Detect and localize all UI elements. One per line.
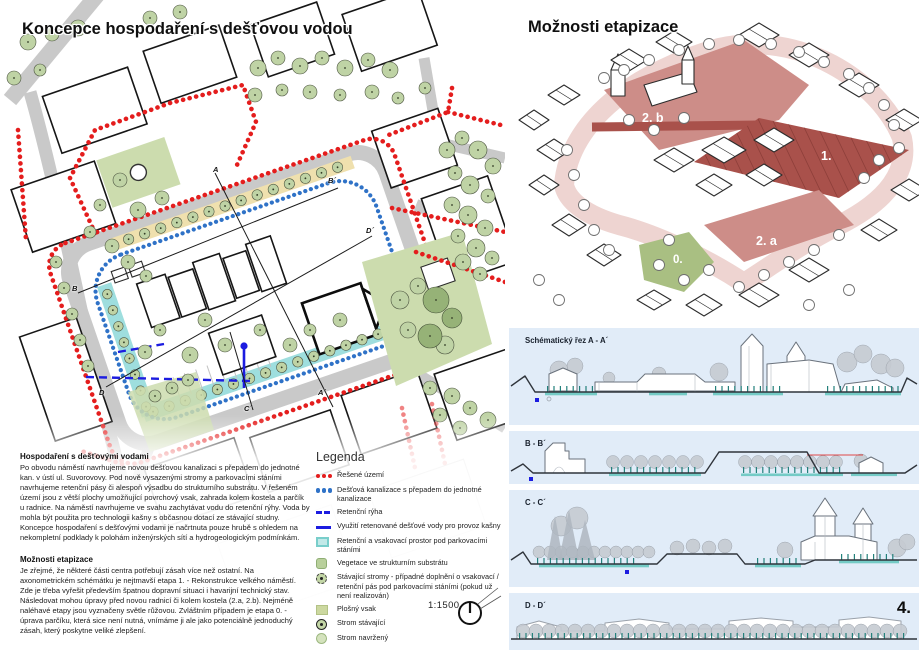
text-block-rainwater: Hospodaření s dešťovými vodami Po obvodu… (20, 452, 310, 543)
legend: Legenda Řešené území Dešťová kanalizace … (316, 450, 502, 648)
axonometric-view: Možnosti etapizace 2. b 1. 2. a 0. (509, 0, 919, 328)
legend-item: Využití retenované dešťové vody pro prov… (316, 521, 502, 533)
section-label-a: Schématický řez A - A´ (525, 336, 608, 345)
legend-item: Retenční rýha (316, 507, 502, 519)
stage-label-2b: 2. b (642, 111, 664, 125)
legend-marker-blue-dots-icon (316, 485, 333, 496)
legend-item: Retenční a vsakovací prostor pod parkova… (316, 536, 502, 555)
text-block-phasing-heading: Možnosti etapizace (20, 555, 310, 564)
text-block-rainwater-body: Po obvodu náměstí navrhujeme novou dešťo… (20, 463, 310, 543)
section-marker-d: D (99, 388, 104, 397)
legend-marker-tree-proposed-icon (316, 633, 333, 644)
legend-marker-blue-line-icon (316, 522, 333, 533)
legend-item: Plošný vsak (316, 604, 502, 616)
stage-label-2a: 2. a (756, 234, 777, 248)
legend-marker-tree-existing-icon (316, 619, 333, 630)
section-label-c: C - C´ (525, 498, 546, 507)
section-c-drawing (509, 490, 919, 587)
section-marker-c2: C´ (244, 404, 252, 413)
legend-item: Strom stávající (316, 618, 502, 630)
section-d-drawing (509, 593, 919, 650)
axonometric-drawing (509, 0, 919, 328)
page-number: 4. (897, 598, 911, 618)
text-block-phasing: Možnosti etapizace Je zřejmé, že některé… (20, 555, 310, 636)
map-title: Koncepce hospodaření s dešťovou vodou (22, 20, 353, 39)
legend-item: Stávající stromy - případné doplnění o v… (316, 572, 502, 600)
phasing-panel: Možnosti etapizace 2. b 1. 2. a 0. Schém… (509, 0, 919, 650)
section-label-d: D - D´ (525, 601, 546, 610)
scale-label: 1:1500 (428, 600, 459, 611)
legend-marker-vegetation-icon (316, 558, 333, 569)
legend-title: Legenda (316, 450, 502, 464)
legend-item: Strom navržený (316, 633, 502, 645)
section-marker-d2: D´ (366, 226, 374, 235)
stage-label-1: 1. (821, 149, 831, 163)
text-block-rainwater-heading: Hospodaření s dešťovými vodami (20, 452, 310, 461)
text-block-phasing-body: Je zřejmé, že některé části centra potře… (20, 566, 310, 636)
legend-marker-infiltration-icon (316, 604, 333, 615)
scale-box: 1:1500 (428, 600, 459, 611)
section-label-b: B - B´ (525, 439, 546, 448)
legend-marker-existing-trees-icon (316, 573, 333, 584)
legend-item: Vegetace ve strukturním substrátu (316, 558, 502, 570)
section-marker-a2: A´ (318, 388, 326, 397)
legend-item: Dešťová kanalizace s přepadem do jednotn… (316, 485, 502, 504)
section-panel-a: Schématický řez A - A´ (509, 328, 919, 425)
axon-title: Možnosti etapizace (528, 18, 678, 37)
section-marker-b2: B´ (328, 176, 336, 185)
rainwater-map-panel: Koncepce hospodaření s dešťovou vodou A … (0, 0, 505, 650)
section-panel-c: C - C´ (509, 490, 919, 587)
stage-label-0: 0. (673, 254, 683, 266)
section-panel-d: D - D´ (509, 593, 919, 650)
section-b-drawing (509, 431, 919, 484)
legend-item: Řešené území (316, 470, 502, 482)
section-panel-b: B - B´ (509, 431, 919, 484)
legend-marker-blue-dash-icon (316, 507, 333, 518)
page: Koncepce hospodaření s dešťovou vodou A … (0, 0, 919, 650)
legend-marker-retention-icon (316, 536, 333, 547)
section-marker-b: B (72, 284, 77, 293)
section-marker-a: A (213, 165, 218, 174)
legend-marker-red-dots-icon (316, 471, 333, 482)
